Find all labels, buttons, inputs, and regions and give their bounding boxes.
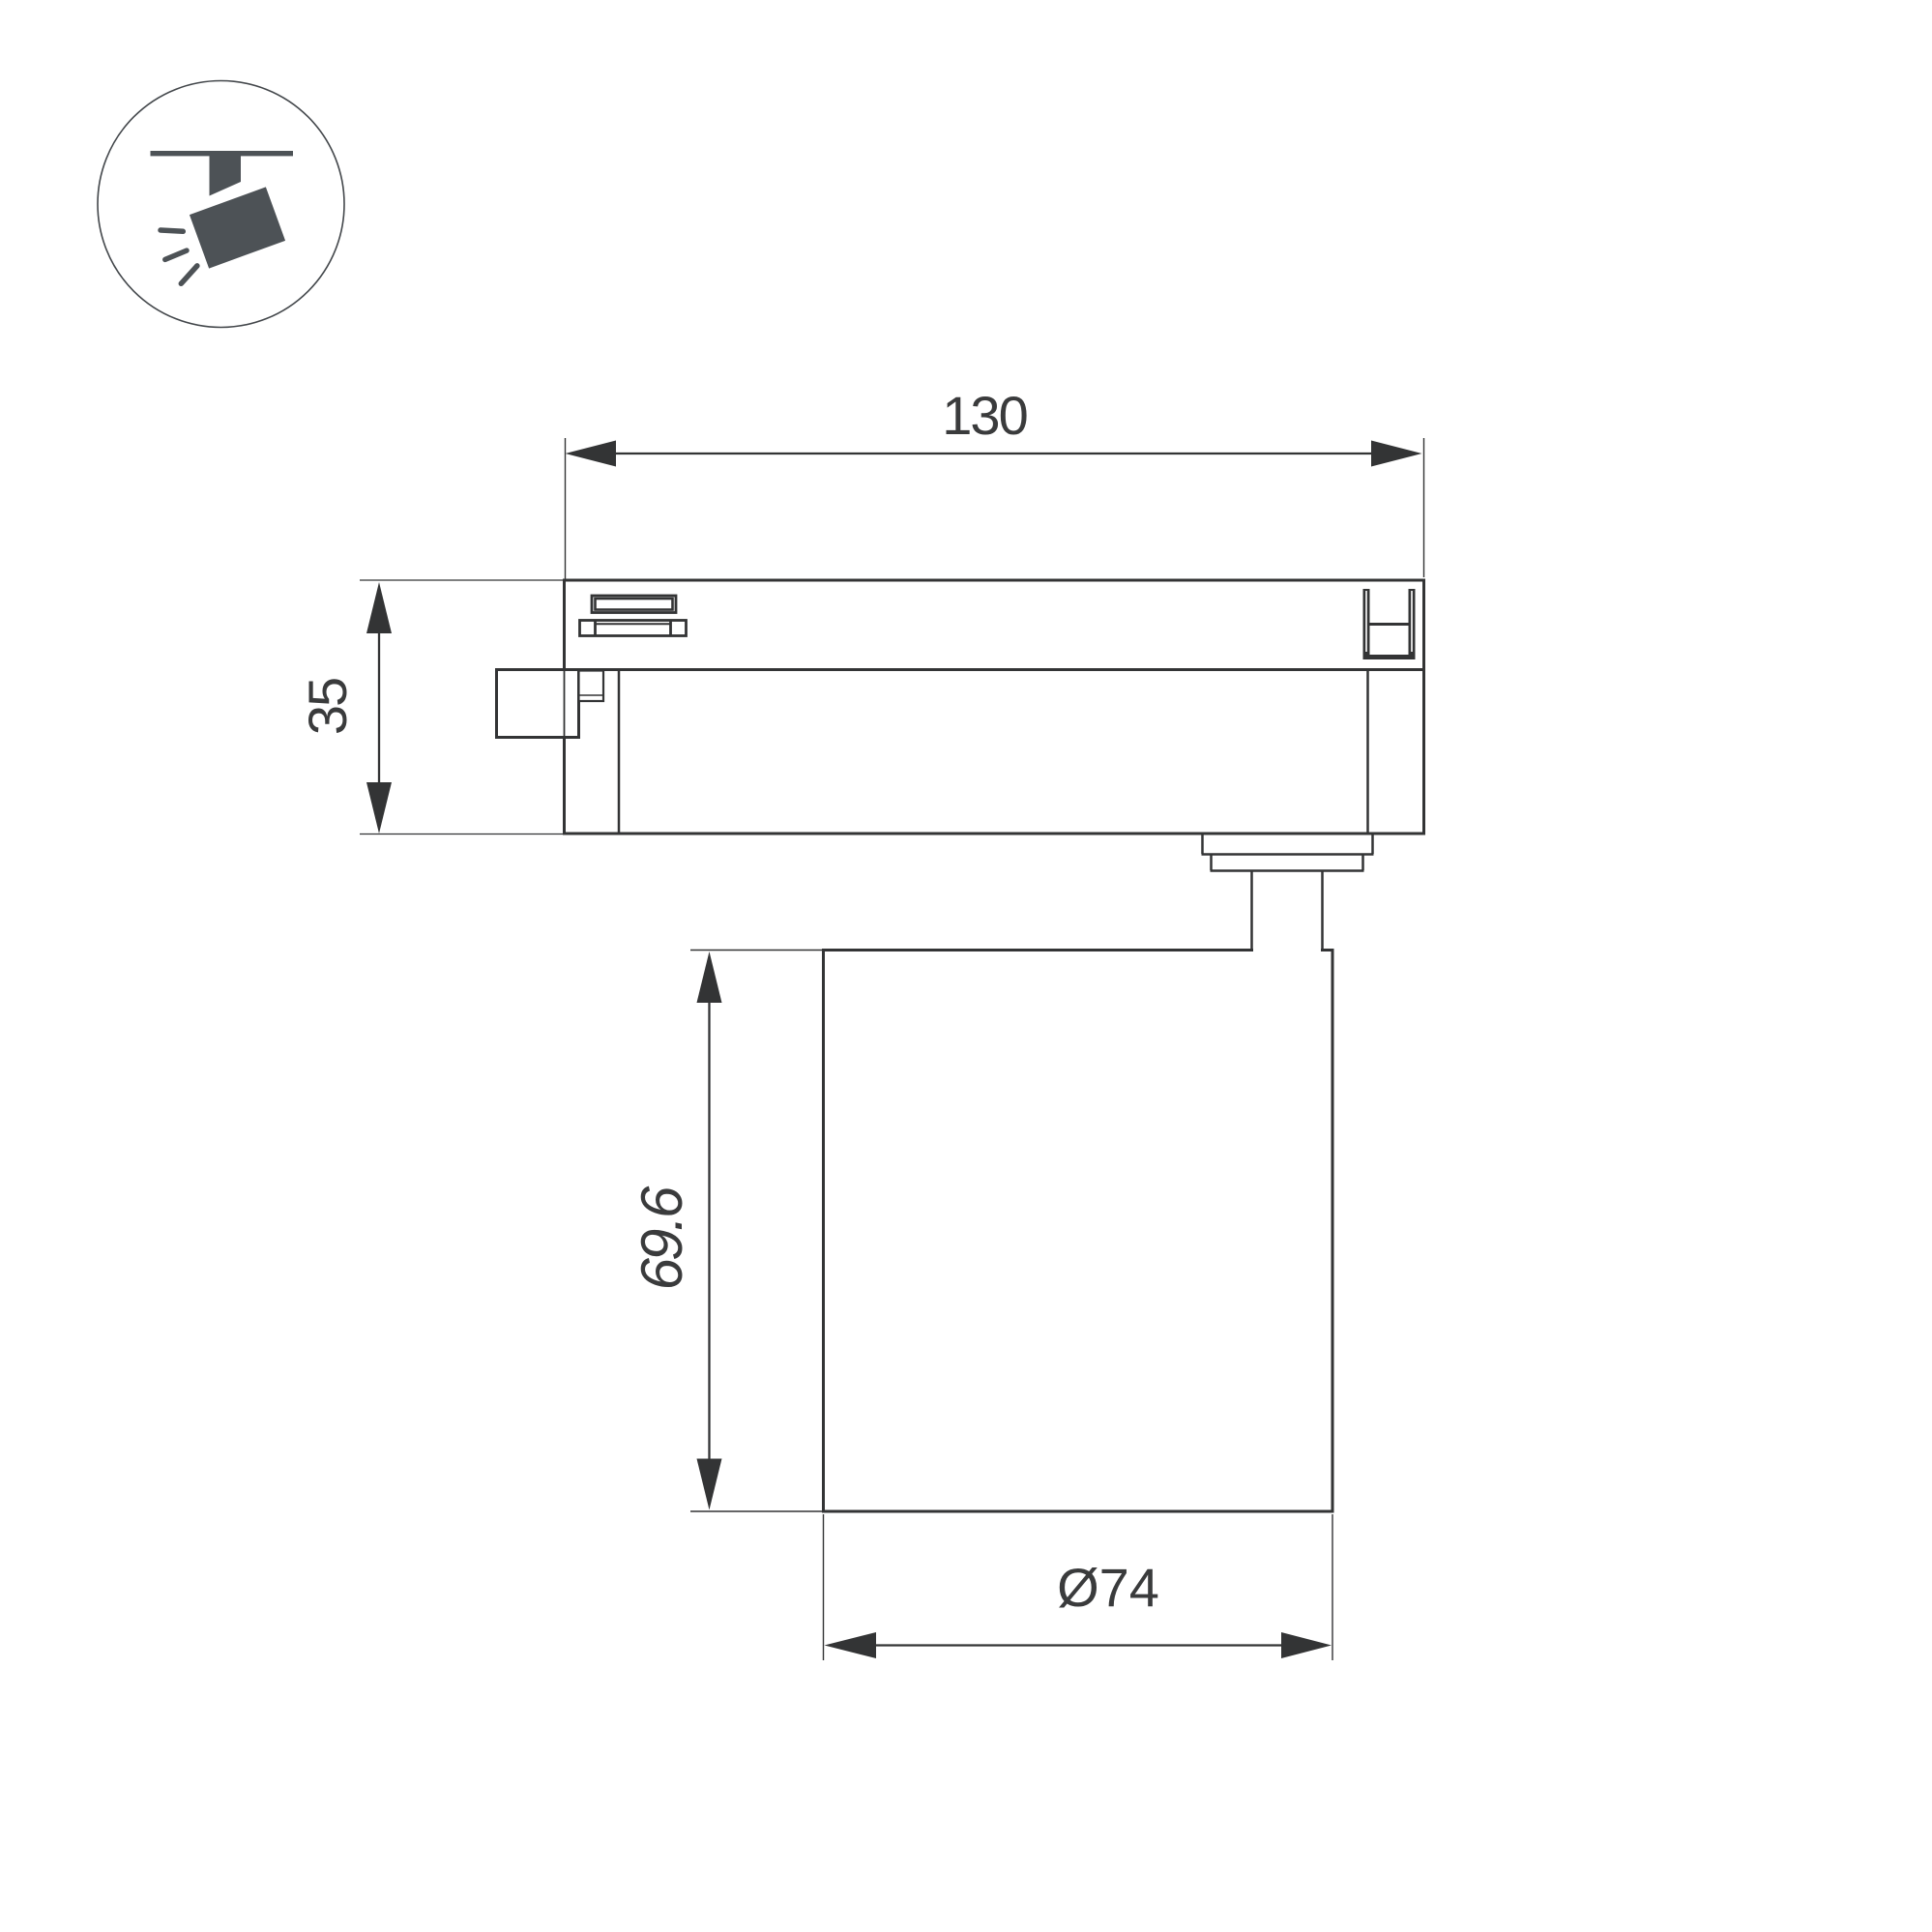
svg-text:130: 130 [942,385,1026,446]
svg-text:35: 35 [297,679,358,735]
svg-text:Ø74: Ø74 [1057,1557,1159,1618]
svg-text:69.6: 69.6 [629,1186,694,1290]
